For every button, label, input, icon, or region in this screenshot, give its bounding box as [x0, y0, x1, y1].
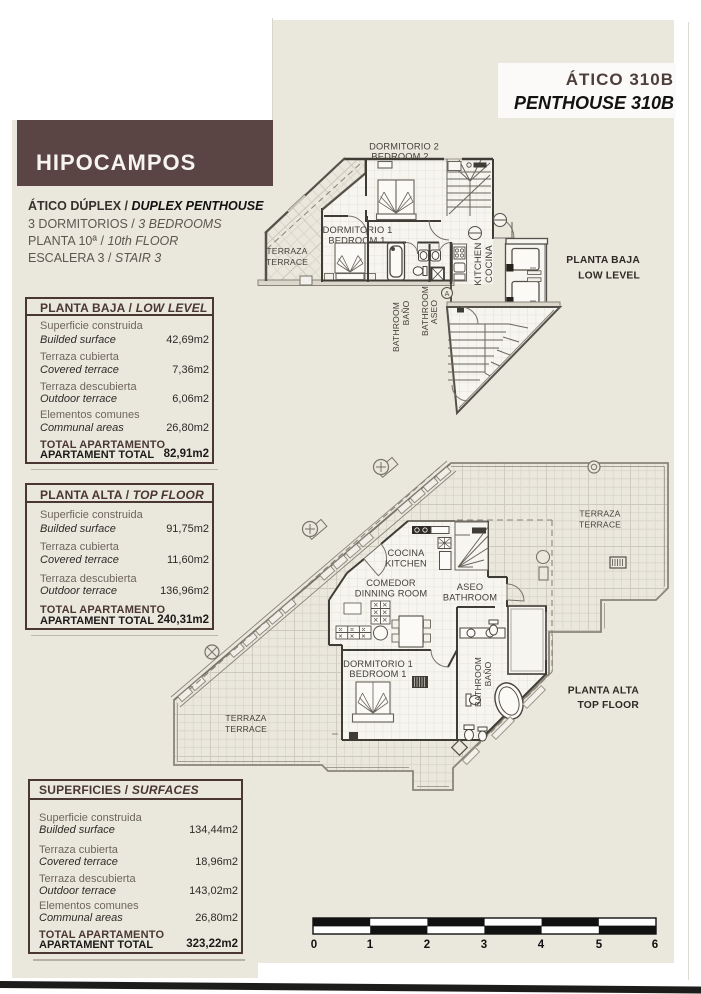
svg-text:BEDROOM 2: BEDROOM 2 [371, 152, 428, 162]
svg-text:ASEO: ASEO [457, 582, 483, 592]
svg-text:BEDROOM 1: BEDROOM 1 [349, 669, 406, 679]
svg-text:2: 2 [424, 939, 430, 951]
svg-text:BATHROOM: BATHROOM [391, 302, 401, 352]
svg-text:TOP FLOOR: TOP FLOOR [578, 700, 640, 711]
svg-text:PLANTA BAJA: PLANTA BAJA [566, 255, 640, 266]
svg-text:TERRAZA: TERRAZA [225, 713, 266, 723]
svg-text:TERRACE: TERRACE [579, 520, 621, 530]
svg-text:KITCHEN: KITCHEN [473, 242, 484, 285]
svg-text:COCINA: COCINA [484, 245, 495, 283]
svg-text:4: 4 [538, 939, 545, 951]
svg-text:TERRACE: TERRACE [225, 724, 267, 734]
svg-text:A: A [445, 291, 450, 298]
svg-text:6: 6 [652, 939, 658, 951]
svg-text:TERRACE: TERRACE [266, 257, 308, 267]
svg-text:DORMITORIO 1: DORMITORIO 1 [323, 225, 393, 235]
svg-text:DORMITORIO 2: DORMITORIO 2 [369, 142, 439, 152]
svg-text:COMEDOR: COMEDOR [366, 578, 416, 588]
svg-text:5: 5 [596, 939, 603, 951]
svg-text:KITCHEN: KITCHEN [385, 559, 427, 569]
svg-text:COCINA: COCINA [387, 548, 425, 558]
svg-text:LOW LEVEL: LOW LEVEL [578, 271, 640, 282]
svg-text:BATHROOM: BATHROOM [473, 657, 483, 707]
svg-text:0: 0 [311, 939, 317, 951]
svg-text:TERRAZA: TERRAZA [579, 509, 620, 519]
svg-text:BAÑO: BAÑO [483, 661, 493, 686]
svg-text:DINNING ROOM: DINNING ROOM [355, 589, 428, 599]
svg-text:3: 3 [481, 939, 487, 951]
svg-text:BATHROOM: BATHROOM [420, 286, 430, 336]
svg-text:TERRAZA: TERRAZA [266, 246, 307, 256]
svg-text:BAÑO: BAÑO [401, 300, 411, 325]
svg-text:BATHROOM: BATHROOM [443, 593, 497, 603]
svg-text:DORMITORIO 1: DORMITORIO 1 [343, 659, 413, 669]
svg-text:BEDROOM 1: BEDROOM 1 [328, 236, 385, 246]
svg-text:ASEO: ASEO [429, 300, 439, 324]
svg-text:PLANTA ALTA: PLANTA ALTA [568, 686, 640, 697]
svg-text:1: 1 [367, 939, 374, 951]
